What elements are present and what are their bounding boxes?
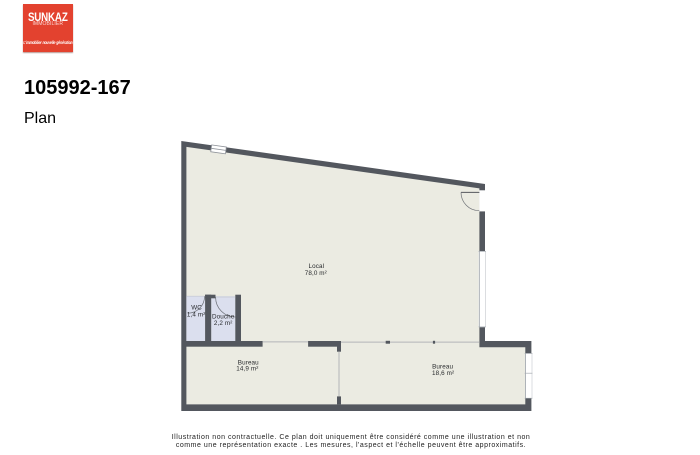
svg-text:78,0 m²: 78,0 m² — [305, 270, 327, 277]
svg-text:18,6 m²: 18,6 m² — [432, 370, 454, 377]
svg-text:2,2 m²: 2,2 m² — [214, 320, 233, 327]
svg-text:14,9 m²: 14,9 m² — [236, 366, 258, 373]
svg-text:1,4 m²: 1,4 m² — [187, 312, 206, 319]
